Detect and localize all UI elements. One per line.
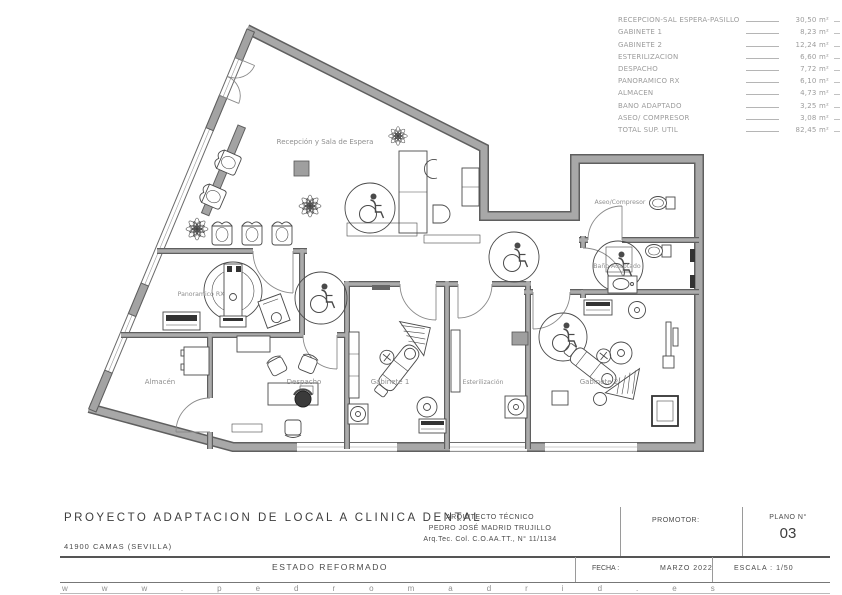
- legend-row: BAÑO ADAPTADO3,25 m²: [618, 97, 840, 109]
- waiting-chair-icon: [213, 148, 242, 176]
- leader-line: [746, 131, 779, 132]
- counter: [349, 332, 359, 398]
- tick: [834, 21, 840, 22]
- storefront-glazing: [89, 29, 255, 412]
- state-label: ESTADO REFORMADO: [200, 562, 460, 572]
- drawing-sheet: Recepción y Sala de Espera Panoramico RX…: [0, 0, 842, 595]
- leader-line: [746, 94, 779, 95]
- divider: [620, 507, 621, 556]
- leader-line: [746, 119, 779, 120]
- waiting-chair-icon: [198, 182, 227, 210]
- room-label-aseo: Aseo/Compresor: [595, 199, 646, 206]
- legend-row: GABINETE 18,23 m²: [618, 24, 840, 36]
- cabinet: [462, 168, 479, 206]
- project-location: 41900 CAMAS (SEVILLA): [64, 542, 172, 551]
- tick: [834, 107, 840, 108]
- room-label-almacen: Almacén: [145, 378, 175, 386]
- storage-room: [181, 347, 209, 375]
- legend-row: ESTERILIZACION6,60 m²: [618, 49, 840, 61]
- legend-row: GABINETE 212,24 m²: [618, 36, 840, 48]
- office-room: [232, 336, 319, 438]
- waiting-chair-icon: [272, 222, 292, 245]
- architect-credits: ARQUITECTO TÉCNICO PEDRO JOSÉ MADRID TRU…: [390, 512, 590, 545]
- equipment-unit: [584, 300, 612, 315]
- dental-chair-icon: [357, 311, 440, 402]
- wc-compressor-room: [650, 197, 676, 210]
- tick: [834, 119, 840, 120]
- room-label-esterilizacion: Esterilización: [463, 378, 504, 386]
- treatment-room-2: [552, 300, 678, 426]
- legend-label: BAÑO ADAPTADO: [618, 102, 742, 110]
- legend-label: GABINETE 1: [618, 28, 742, 36]
- divider: [575, 557, 576, 582]
- legend-label: DESPACHO: [618, 65, 742, 73]
- xray-arm: [663, 322, 678, 368]
- promoter-label: PROMOTOR:: [652, 517, 700, 524]
- room-label-gabinete2: Gabinete 2: [580, 378, 619, 386]
- office-chair-icon: [433, 205, 450, 223]
- legend-label: GABINETE 2: [618, 41, 742, 49]
- room-label-panoramico: Panoramico RX: [178, 291, 225, 298]
- tick: [834, 82, 840, 83]
- legend-row: PANORAMICO RX6,10 m²: [618, 73, 840, 85]
- sink: [505, 396, 527, 418]
- cart: [552, 391, 568, 405]
- duct: [512, 332, 528, 345]
- sink: [608, 276, 637, 293]
- date-label: FECHA :: [592, 565, 619, 572]
- room-label-reception: Recepción y Sala de Espera: [277, 138, 374, 146]
- legend-label: PANORAMICO RX: [618, 77, 742, 85]
- legend-value: 7,72 m²: [783, 65, 829, 73]
- guest-chair-icon: [285, 420, 301, 438]
- treatment-room-1: [348, 285, 446, 433]
- sink: [348, 404, 368, 424]
- legend-value: 3,25 m²: [783, 102, 829, 110]
- legend-value: 4,73 m²: [783, 89, 829, 97]
- grab-bar: [690, 275, 695, 288]
- date-value: MARZO 2022: [660, 565, 713, 572]
- legend-label: TOTAL SUP. UTIL: [618, 126, 742, 134]
- cabinet: [237, 336, 270, 352]
- legend-row: DESPACHO7,72 m²: [618, 61, 840, 73]
- compressor-box: [652, 396, 678, 426]
- legend-value: 6,60 m²: [783, 53, 829, 61]
- leader-line: [746, 82, 779, 83]
- plan-number: 03: [753, 525, 823, 542]
- guest-chair-icon: [265, 354, 287, 377]
- legend-value: 30,50 m²: [783, 16, 829, 24]
- plan-number-label: PLANO N°: [753, 514, 823, 521]
- leader-line: [746, 58, 779, 59]
- legend-value: 8,23 m²: [783, 28, 829, 36]
- architect-heading: ARQUITECTO TÉCNICO: [390, 512, 590, 523]
- legend-row: ASEO/ COMPRESOR3,08 m²: [618, 110, 840, 122]
- leader-line: [746, 33, 779, 34]
- legend-label: ASEO/ COMPRESOR: [618, 114, 742, 122]
- tick: [834, 94, 840, 95]
- divider: [742, 507, 743, 556]
- dental-chair-icon: [560, 326, 651, 409]
- tick: [834, 46, 840, 47]
- waiting-chair-icon: [212, 222, 232, 245]
- legend-label: ALMACEN: [618, 89, 742, 97]
- divider: [60, 593, 830, 594]
- tick: [834, 33, 840, 34]
- legend-row: ALMACEN4,73 m²: [618, 85, 840, 97]
- tick: [834, 58, 840, 59]
- area-legend: RECEPCION-SAL ESPERA-PASILLO30,50 m² GAB…: [618, 12, 840, 134]
- equipment-unit: [419, 419, 446, 433]
- legend-row: TOTAL SUP. UTIL82,45 m²: [618, 122, 840, 134]
- control-screen: [258, 294, 290, 329]
- sink: [629, 302, 646, 319]
- leader-line: [746, 21, 779, 22]
- tick: [834, 131, 840, 132]
- scale-label: ESCALA : 1/50: [734, 565, 794, 572]
- cabinet: [424, 235, 480, 243]
- leader-line: [746, 46, 779, 47]
- legend-label: RECEPCION-SAL ESPERA-PASILLO: [618, 16, 742, 24]
- guest-chair-icon: [298, 352, 319, 374]
- leader-line: [746, 70, 779, 71]
- xray-console: [163, 312, 200, 330]
- shelving: [184, 347, 209, 375]
- divider: [60, 582, 830, 583]
- legend-label: ESTERILIZACION: [618, 53, 742, 61]
- waiting-chair-icon: [242, 222, 262, 245]
- plant-icon: [299, 195, 321, 217]
- legend-value: 3,08 m²: [783, 114, 829, 122]
- legend-row: RECEPCION-SAL ESPERA-PASILLO30,50 m²: [618, 12, 840, 24]
- toilet-icon: [650, 197, 676, 210]
- office-chair-icon: [294, 389, 312, 407]
- plant-icon: [186, 218, 208, 240]
- title-block: PROYECTO ADAPTACION DE LOCAL A CLINICA D…: [60, 505, 830, 595]
- room-label-despacho: Despacho: [287, 378, 322, 386]
- room-label-bano: Baño Adaptado: [593, 263, 641, 270]
- room-label-gabinete1: Gabinete 1: [371, 378, 410, 386]
- legend-value: 82,45 m²: [783, 126, 829, 134]
- stool-icon: [610, 342, 632, 364]
- stool-icon: [417, 397, 437, 417]
- architect-name: PEDRO JOSÉ MADRID TRUJILLO: [390, 523, 590, 534]
- legend-value: 6,10 m²: [783, 77, 829, 85]
- plant-icon: [389, 127, 408, 146]
- shelf: [232, 424, 262, 432]
- reception-desk: [399, 151, 427, 233]
- toilet-icon: [646, 245, 672, 258]
- leader-line: [746, 107, 779, 108]
- architect-credentials: Arq.Tec. Col. C.O.AA.TT., N° 11/1134: [390, 534, 590, 545]
- pass-through: [372, 285, 390, 290]
- website: www.pedromadrid.es: [62, 584, 828, 593]
- tick: [834, 70, 840, 71]
- column: [294, 161, 309, 176]
- divider: [60, 556, 830, 558]
- counter: [451, 330, 460, 392]
- grab-bar: [690, 249, 695, 262]
- legend-value: 12,24 m²: [783, 41, 829, 49]
